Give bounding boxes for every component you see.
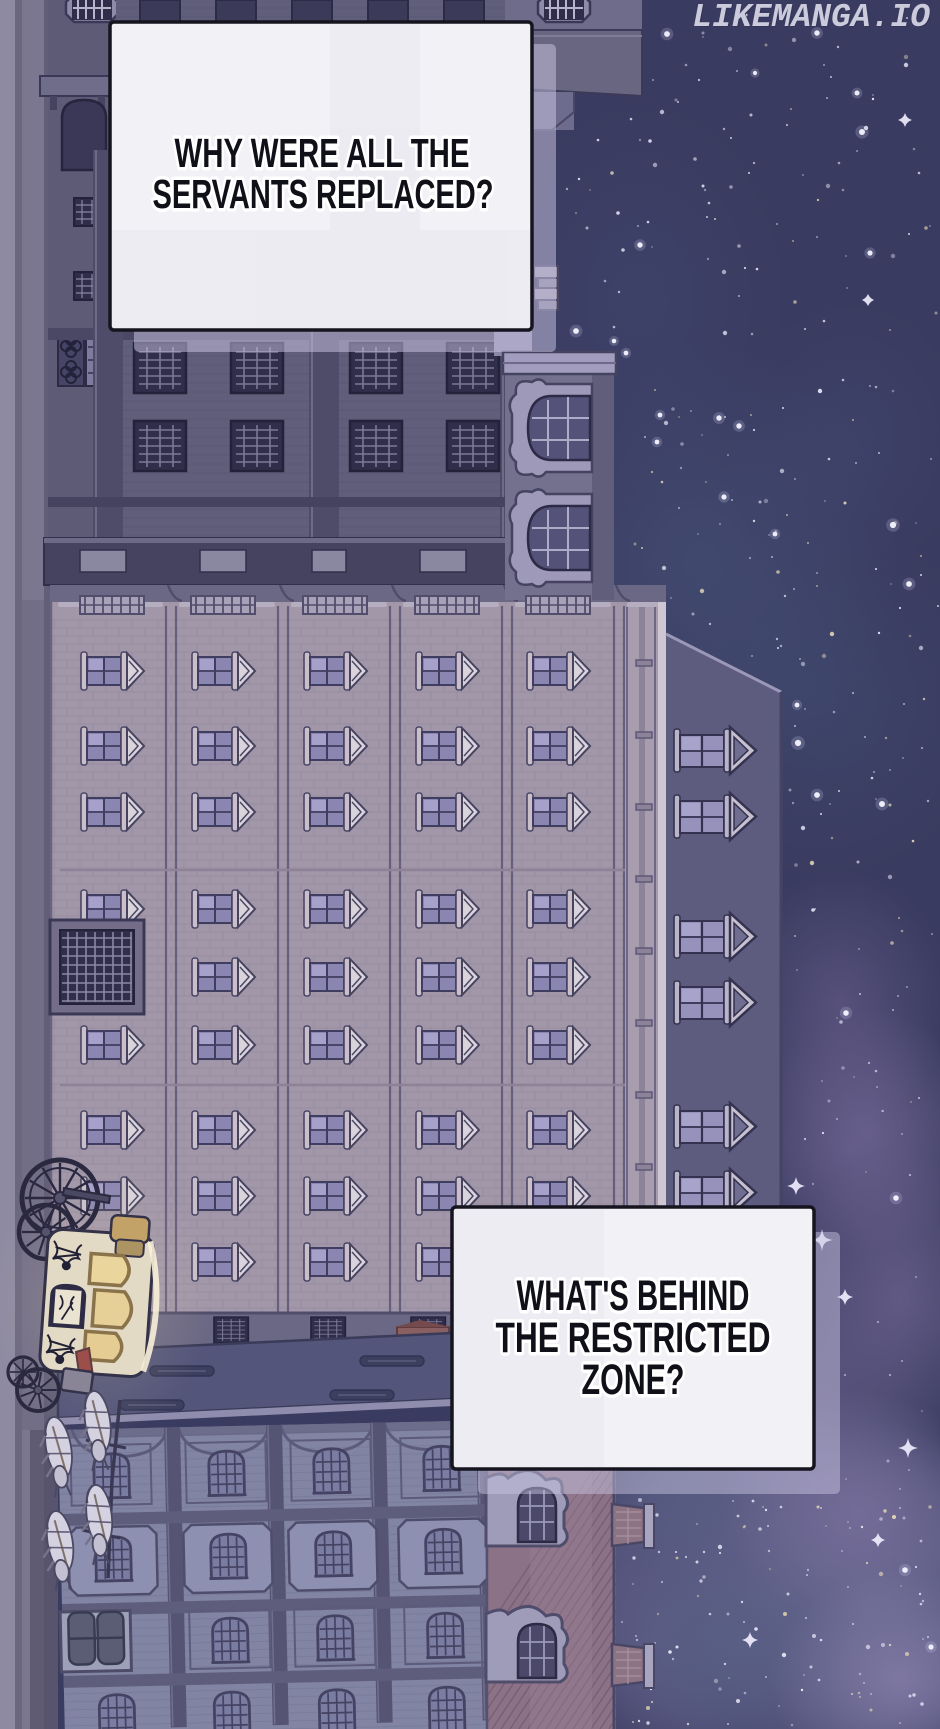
svg-text:WHY WERE ALL THE: WHY WERE ALL THE (175, 130, 470, 176)
svg-text:WHAT'S BEHIND: WHAT'S BEHIND (517, 1272, 750, 1320)
svg-text:THE RESTRICTED: THE RESTRICTED (496, 1314, 771, 1362)
svg-text:ZONE?: ZONE? (582, 1356, 685, 1404)
svg-text:SERVANTS REPLACED?: SERVANTS REPLACED? (153, 171, 494, 217)
